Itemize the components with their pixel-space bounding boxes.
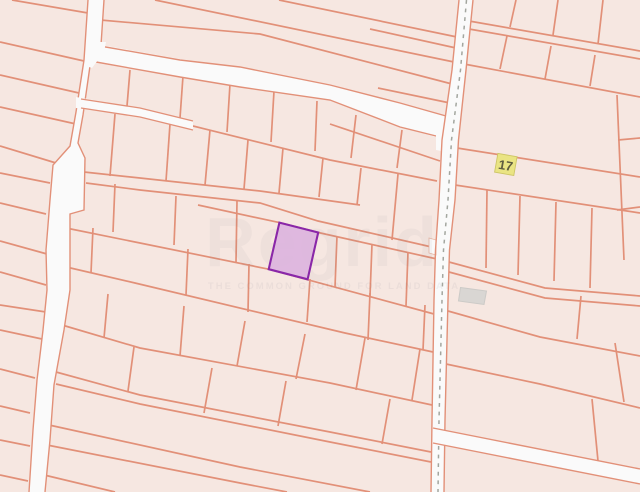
svg-text:THE COMMON GROUND FOR LAND DAT: THE COMMON GROUND FOR LAND DATA bbox=[208, 281, 460, 292]
svg-text:Regrid: Regrid bbox=[205, 203, 439, 281]
svg-text:17: 17 bbox=[497, 157, 514, 174]
